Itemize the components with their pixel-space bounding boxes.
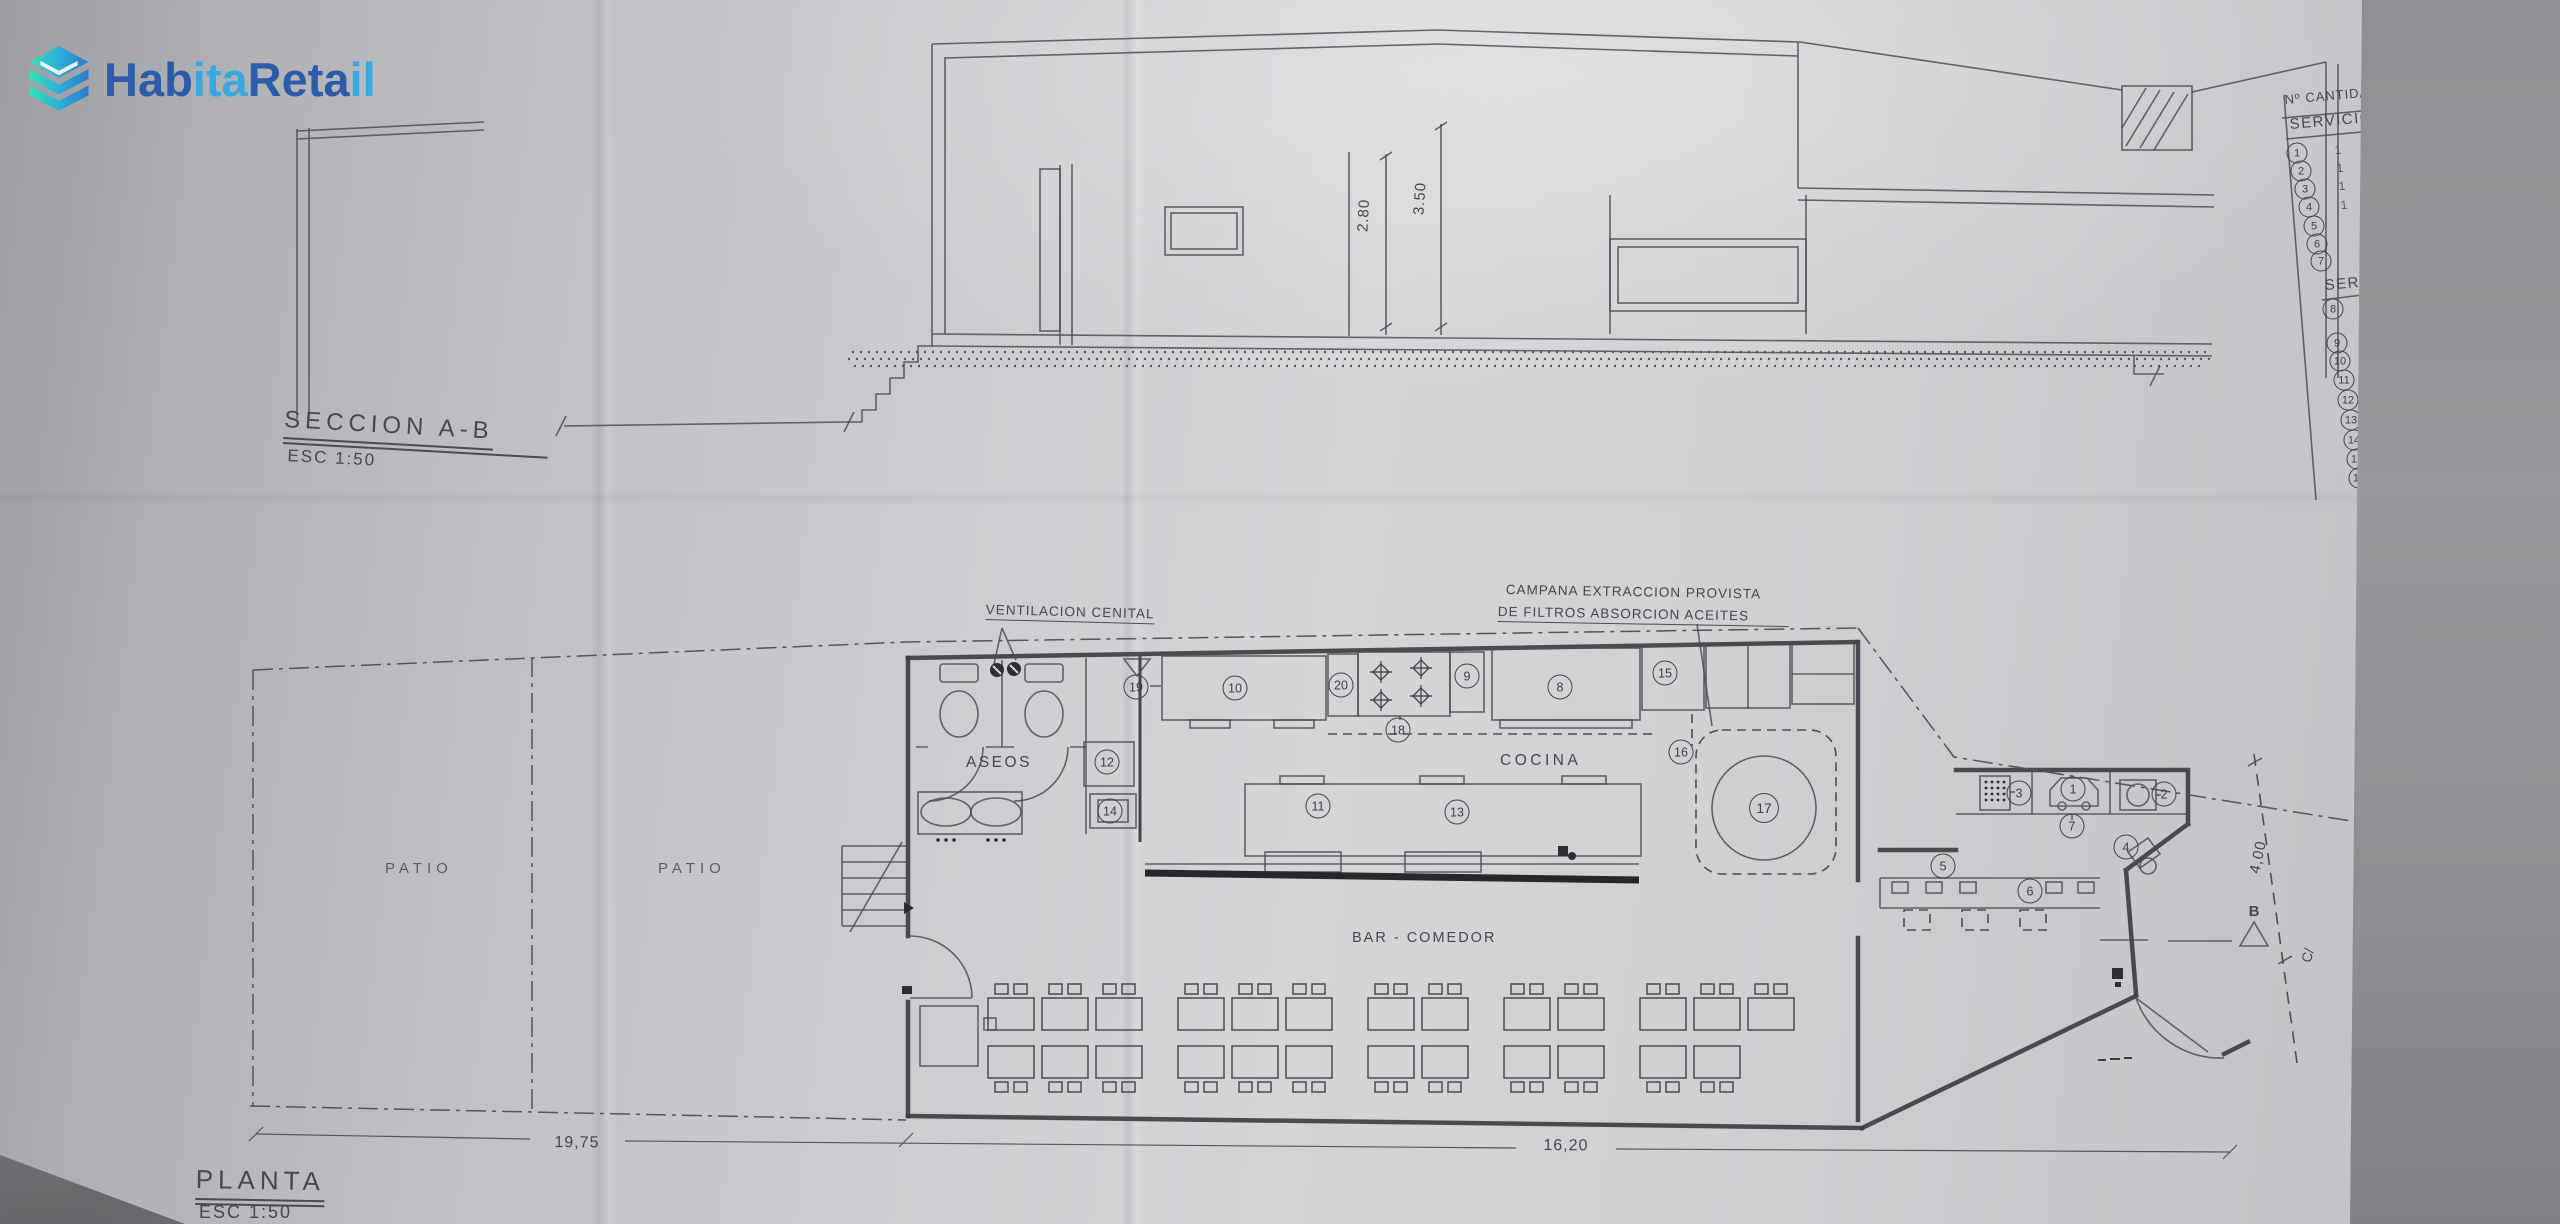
legend-row-8: 8 [2323, 299, 2344, 320]
stove-burners [1370, 657, 1432, 711]
plan-marker-16: 16 [1669, 740, 1694, 765]
dashed-outlines [1328, 714, 2298, 1070]
legend-row-15: 15 [2347, 449, 2368, 470]
plan-marker-4: 4 [2114, 835, 2139, 860]
legend-qty-4: 1 [2340, 198, 2348, 213]
legend-qty-1: 1 [2334, 143, 2342, 158]
section-dim-280: 2.80 [1354, 198, 1373, 232]
plan-marker-19: 19 [1124, 675, 1149, 700]
room-cocina: COCINA [1500, 752, 1581, 770]
legend-row-4: 4 [2299, 197, 2320, 218]
plan-marker-18: 18 [1386, 718, 1411, 743]
room-bar-comedor: BAR - COMEDOR [1352, 930, 1496, 946]
blueprint-drawing [0, 0, 2560, 1224]
legend-row-13: 13 [2341, 410, 2362, 431]
logo-text-reta: Reta [248, 53, 350, 106]
plan-walls [908, 642, 2248, 1128]
legend-header-serv: SERV [2324, 273, 2372, 294]
plan-marker-1: 1 [2061, 777, 2086, 802]
section-drawing [297, 30, 2338, 436]
plan-marker-7: 7 [2060, 814, 2085, 839]
plan-dim-1620: 16,20 [1543, 1137, 1588, 1155]
logo-text-ita: ita [193, 53, 248, 106]
room-aseos: ASEOS [966, 754, 1032, 772]
room-patio-1: PATIO [385, 860, 453, 877]
plan-marker-5: 5 [1931, 854, 1956, 879]
plan-marker-6: 6 [2018, 879, 2043, 904]
legend-qty-2: 1 [2336, 161, 2344, 176]
plan-marker-20: 20 [1329, 673, 1354, 698]
legend-row-10: 10 [2330, 351, 2351, 372]
plan-marker-11: 11 [1306, 794, 1331, 819]
plan-marker-3: 3 [2007, 781, 2032, 806]
plan-scale: ESC 1:50 [199, 1202, 292, 1223]
logo-text-hab: Hab [104, 53, 193, 106]
habitaretail-logo: HabitaRetail [24, 44, 376, 116]
plan-title: PLANTA [195, 1164, 325, 1207]
room-patio-2: PATIO [658, 860, 726, 877]
legend-row-11: 11 [2334, 370, 2355, 391]
plan-marker-12: 12 [1095, 750, 1120, 775]
plan-marker-10: 10 [1223, 676, 1248, 701]
dimension-lines [249, 1127, 2237, 1159]
legend-row-7: 7 [2311, 251, 2332, 272]
section-marker-b: B [2249, 903, 2260, 920]
blueprint-paper: SECCION A-B ESC 1:50 2.80 3.50 PLANTA ES… [0, 0, 2560, 1224]
plan-filled-symbols [902, 662, 2123, 994]
dining-tables [988, 984, 1794, 1092]
plan-marker-2: 2 [2152, 782, 2177, 807]
logo-text-il: il [350, 53, 376, 106]
plan-marker-14: 14 [1098, 799, 1123, 824]
plan-marker-9: 9 [1455, 664, 1480, 689]
legend-row-14: 14 [2344, 430, 2365, 451]
plan-marker-8: 8 [1548, 675, 1573, 700]
section-dim-350: 3.50 [1410, 181, 1429, 215]
plan-marker-17: 17 [1749, 793, 1779, 823]
plan-marker-15: 15 [1653, 661, 1678, 686]
plan-marker-13: 13 [1445, 800, 1470, 825]
habitaretail-logo-text: HabitaRetail [104, 44, 376, 116]
plan-dim-1975: 19,75 [554, 1134, 599, 1152]
photo-of-blueprint: SECCION A-B ESC 1:50 2.80 3.50 PLANTA ES… [0, 0, 2560, 1224]
legend-row-12: 12 [2338, 390, 2359, 411]
legend-row-16: 16 [2349, 468, 2370, 489]
plan-detail [842, 95, 2362, 1066]
legend-qty-3: 1 [2338, 179, 2346, 194]
habitaretail-logo-icon [24, 45, 94, 115]
